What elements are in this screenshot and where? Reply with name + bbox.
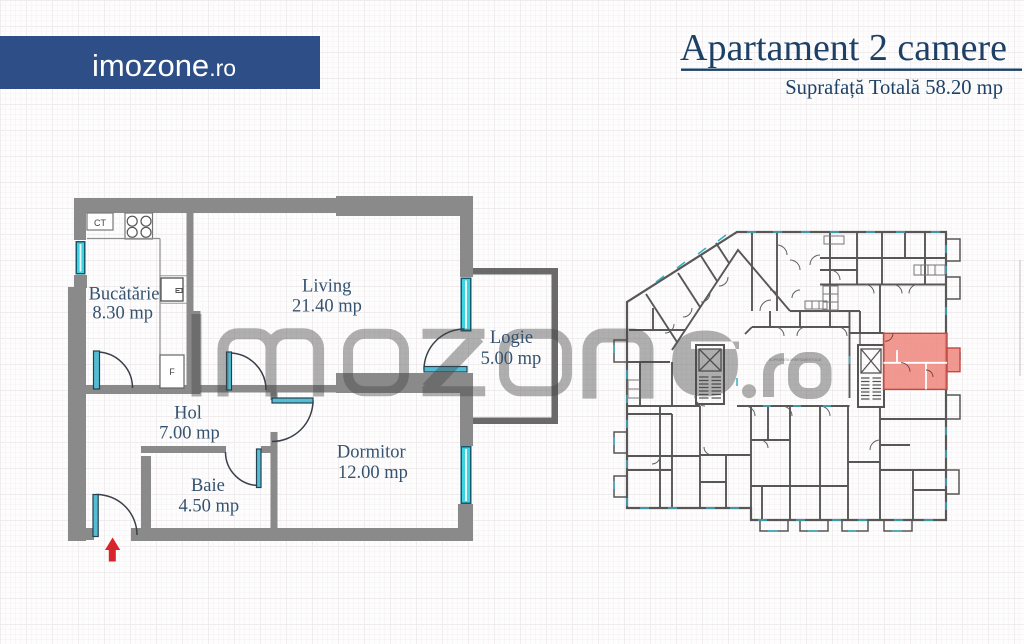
svg-text:Apartament 2 camere: Apartament 2 camere	[680, 27, 1007, 69]
svg-text:21.40 mp: 21.40 mp	[292, 297, 362, 317]
svg-text:Logie: Logie	[490, 328, 533, 348]
svg-text:CT: CT	[94, 218, 106, 228]
svg-text:Hol: Hol	[174, 404, 202, 424]
svg-text:Suprafață Totală 58.20 mp: Suprafață Totală 58.20 mp	[785, 77, 1003, 99]
svg-text:5.00 mp: 5.00 mp	[481, 349, 542, 369]
svg-text:8.30 mp: 8.30 mp	[92, 304, 153, 324]
svg-text:12.00 mp: 12.00 mp	[338, 463, 408, 483]
svg-text:Bucătărie: Bucătărie	[89, 285, 160, 305]
svg-text:7.00 mp: 7.00 mp	[159, 424, 220, 444]
svg-text:4.50 mp: 4.50 mp	[178, 497, 239, 517]
svg-text:F: F	[169, 367, 175, 377]
svg-text:Dormitor: Dormitor	[337, 443, 406, 463]
svg-text:Baie: Baie	[191, 476, 225, 496]
svg-text:Living: Living	[302, 277, 351, 297]
